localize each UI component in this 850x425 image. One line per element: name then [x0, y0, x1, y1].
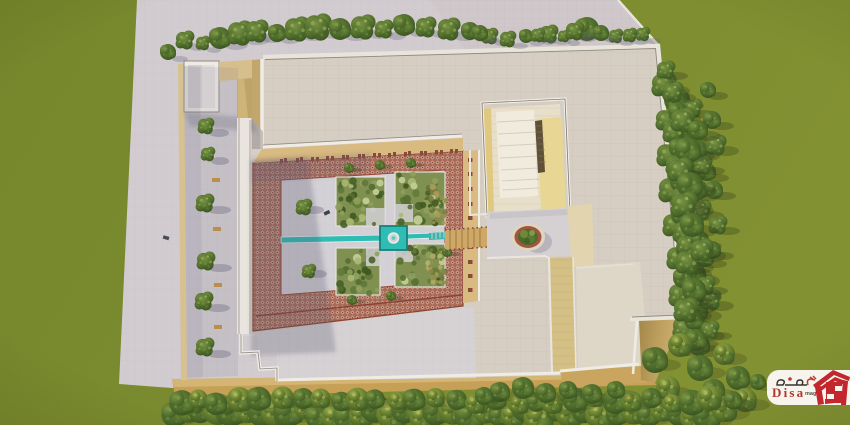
svg-text:mag: mag — [805, 391, 816, 397]
svg-text:Disa: Disa — [772, 385, 805, 400]
